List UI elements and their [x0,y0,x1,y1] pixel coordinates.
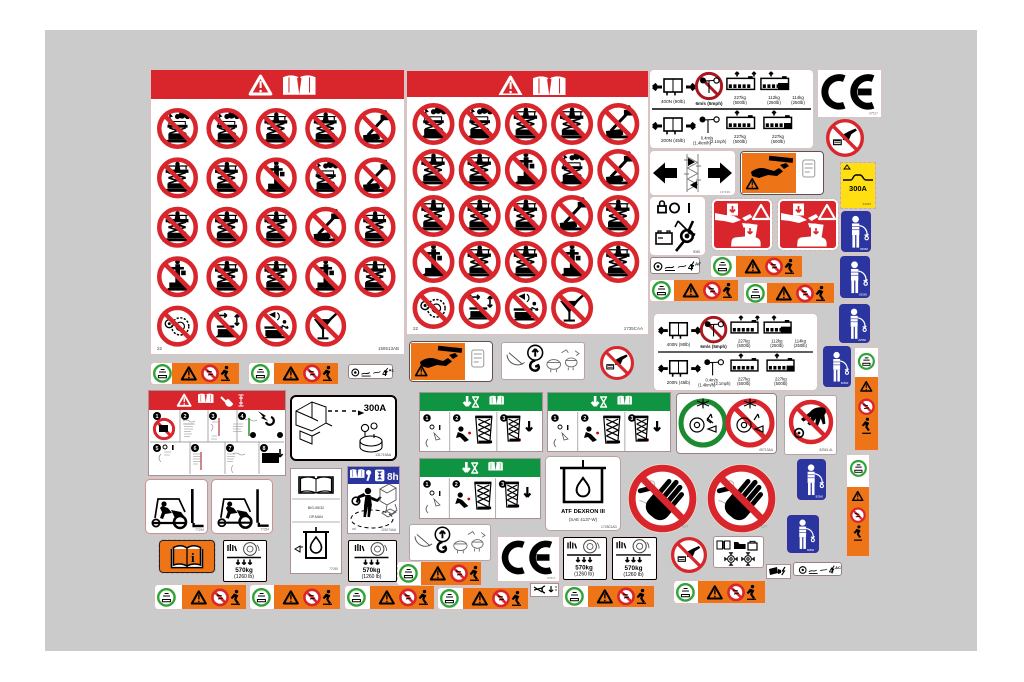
svg-text:82560: 82560 [859,293,867,297]
svg-text:(500lb): (500lb) [733,139,747,144]
svg-text:8h: 8h [387,472,399,483]
svg-text:3: 3 [501,482,504,488]
svg-text:570kg: 570kg [363,567,381,574]
svg-text:2: 2 [583,416,586,422]
svg-text:6m/s (5mph): 6m/s (5mph) [695,101,723,106]
svg-text:400N (90lb): 400N (90lb) [661,99,685,104]
svg-text:6: 6 [194,446,197,452]
svg-text:(2.1mph): (2.1mph) [710,139,727,144]
svg-text:(500lb): (500lb) [733,100,747,105]
svg-text:BIG-95/32: BIG-95/32 [308,506,324,510]
svg-text:82560: 82560 [859,338,867,342]
svg-text:(250lb): (250lb) [791,100,805,105]
svg-text:5: 5 [156,446,159,452]
svg-text:ud: ud [352,527,356,531]
svg-text:52045: 52045 [863,202,872,206]
svg-text:2: 2 [455,482,458,488]
svg-text:2: 2 [455,416,458,422]
svg-text:9085: 9085 [693,250,700,254]
svg-text:47277: 47277 [759,524,768,528]
svg-text:(250lb): (250lb) [794,343,808,348]
svg-text:1: 1 [426,482,429,488]
svg-text:3: 3 [630,416,633,422]
svg-text:(1260 lb): (1260 lb) [234,574,254,579]
svg-text:131719AA: 131719AA [375,453,392,457]
svg-text:400N (90lb): 400N (90lb) [667,342,691,347]
svg-text:77254: 77254 [260,528,269,532]
svg-text:137199: 137199 [720,190,730,194]
svg-text:82560: 82560 [860,247,868,251]
svg-text:AC: AC [835,565,841,570]
svg-text:97517: 97517 [547,576,556,580]
svg-text:77254: 77254 [195,528,204,532]
svg-text:(500lb): (500lb) [774,381,788,386]
svg-text:OP.MAN: OP.MAN [309,515,323,519]
svg-text:101074AA: 101074AA [381,528,397,532]
svg-text:(SAE 4137-W): (SAE 4137-W) [569,517,598,522]
svg-text:(500lb): (500lb) [737,381,751,386]
svg-text:570kg: 570kg [625,565,643,572]
svg-text:1: 1 [156,414,159,420]
svg-text:2: 2 [184,414,187,420]
svg-text:3: 3 [212,414,215,420]
svg-text:97517: 97517 [869,112,878,116]
svg-text:6m/s (5mph): 6m/s (5mph) [700,344,727,349]
svg-text:(1260 lb): (1260 lb) [623,572,643,577]
svg-text:82560: 82560 [841,381,849,385]
svg-text:4: 4 [241,414,244,420]
svg-text:7: 7 [229,446,232,452]
svg-text:(500lb): (500lb) [737,343,751,348]
svg-text:(2.1mph): (2.1mph) [714,381,731,386]
svg-text:ATF DEXRON III: ATF DEXRON III [561,509,605,515]
svg-text:158513AB: 158513AB [378,346,399,351]
svg-text:82560: 82560 [816,494,824,498]
svg-text:200N (45lb): 200N (45lb) [667,380,691,385]
svg-text:82561 AL: 82561 AL [820,448,834,452]
svg-text:172801AD: 172801AD [601,525,618,529]
svg-text:300A: 300A [364,402,387,413]
svg-text:(1260 lb): (1260 lb) [574,572,594,578]
svg-text:1: 1 [426,416,429,422]
svg-text:22: 22 [413,326,419,331]
svg-text:AC: AC [389,368,394,373]
svg-text:i: i [191,550,195,565]
svg-text:300A: 300A [849,184,868,193]
svg-text:(250lb): (250lb) [767,100,781,105]
svg-text:(250lb): (250lb) [770,343,784,348]
svg-text:77055: 77055 [329,567,338,571]
svg-text:570kg: 570kg [235,567,253,574]
svg-text:(1260 lb): (1260 lb) [362,574,382,579]
svg-text:AC: AC [695,262,701,267]
svg-text:3: 3 [502,416,505,422]
svg-text:1735CAA: 1735CAA [624,326,643,331]
svg-text:49713AA: 49713AA [759,448,774,452]
svg-text:8: 8 [263,446,266,452]
svg-text:82560: 82560 [807,548,815,552]
svg-text:22: 22 [157,346,163,351]
svg-text:200N (45lb): 200N (45lb) [661,138,685,143]
svg-text:1: 1 [554,416,557,422]
svg-text:(500lb): (500lb) [771,139,785,144]
svg-text:47277: 47277 [679,524,688,528]
svg-text:570kg: 570kg [575,565,593,572]
